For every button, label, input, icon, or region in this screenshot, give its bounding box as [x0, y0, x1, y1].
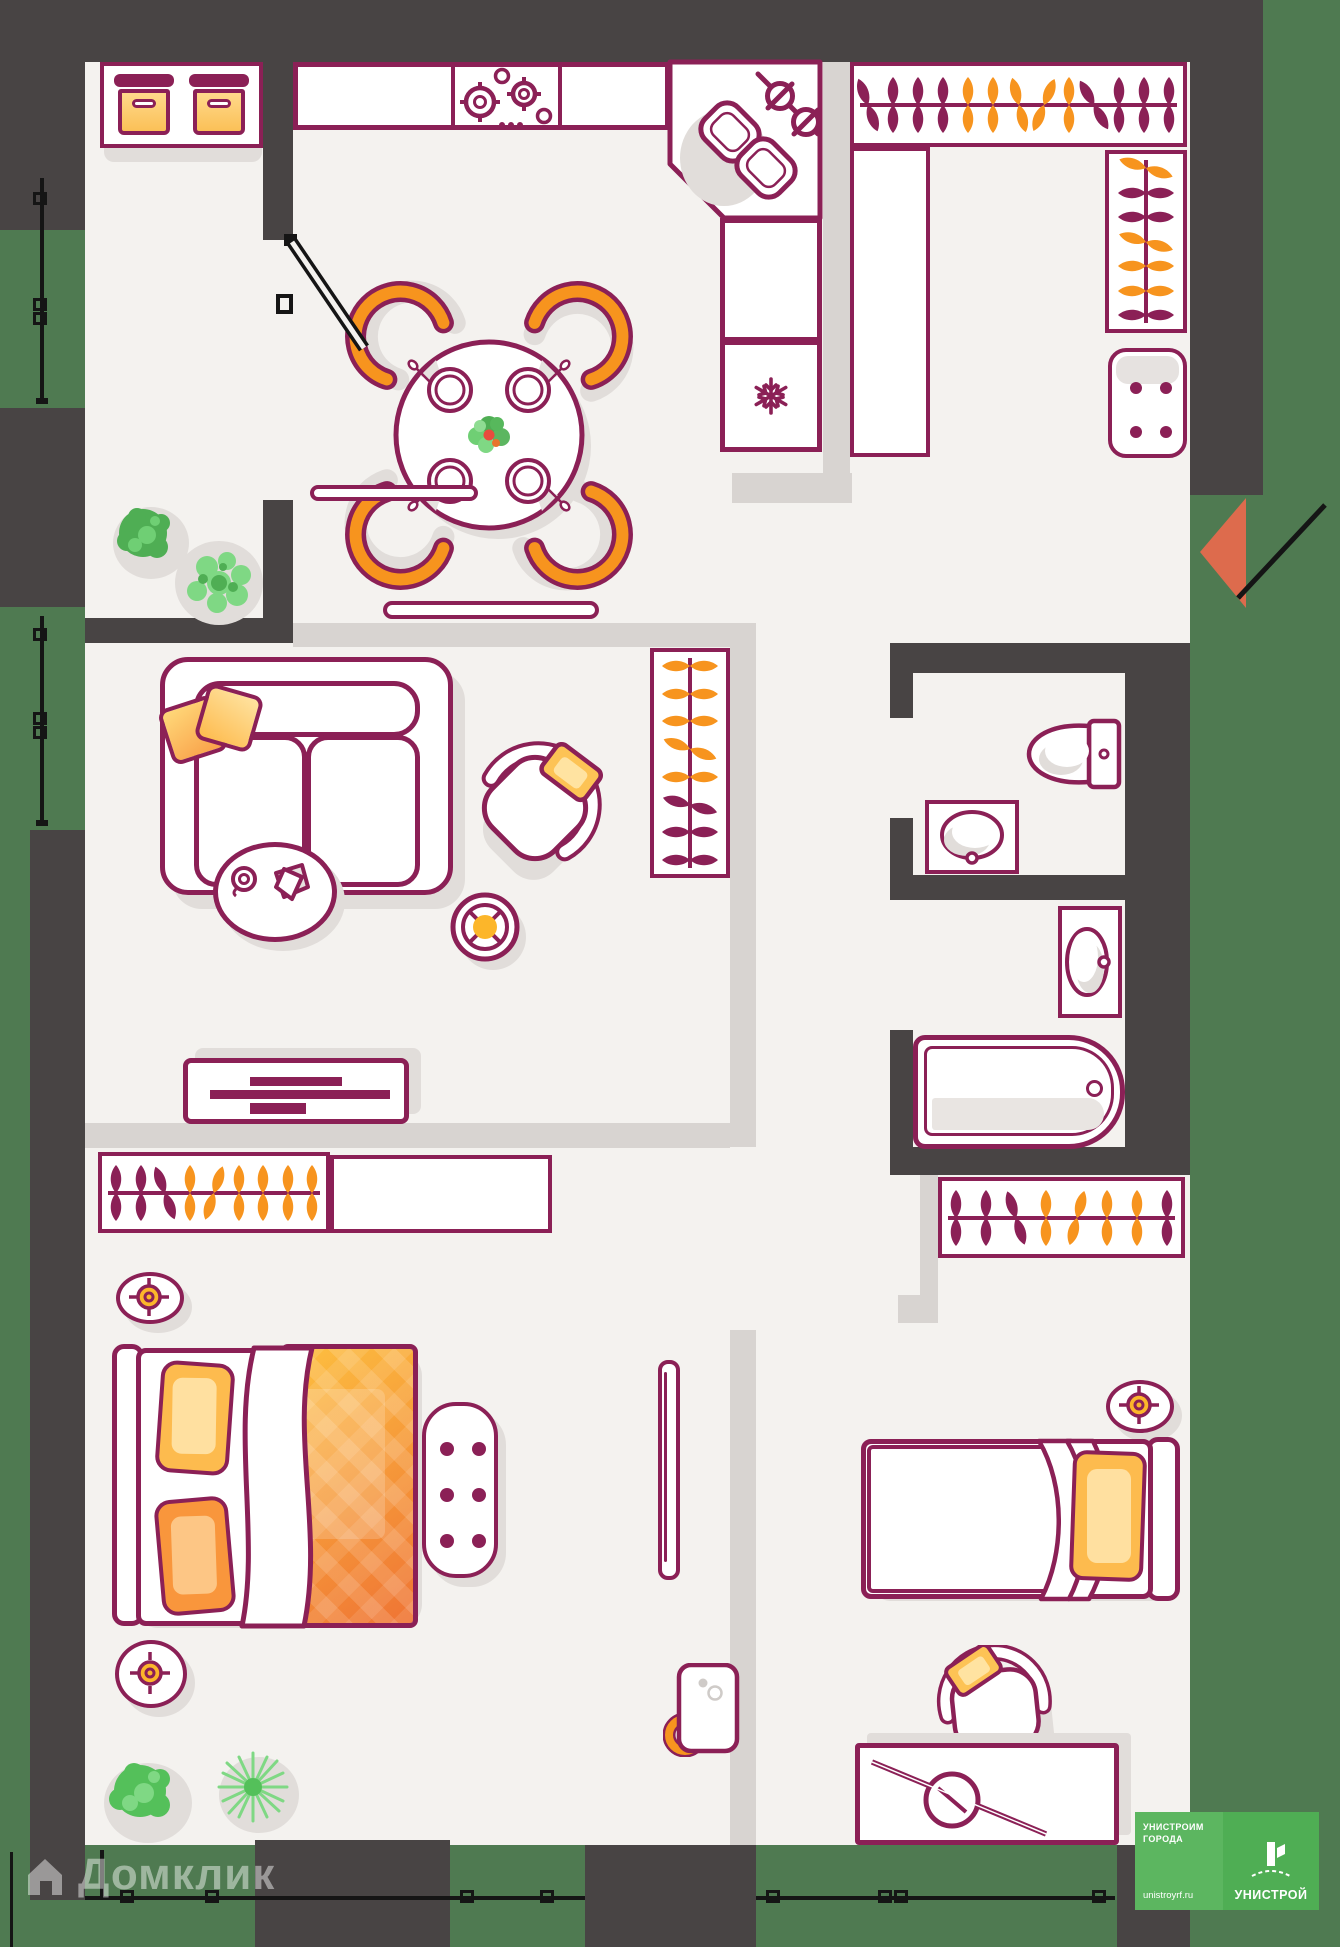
- hanger-icon: [1117, 258, 1175, 274]
- hanger-icon: [133, 1164, 149, 1222]
- tv-stand: [183, 1058, 409, 1124]
- window-frame: [756, 1896, 1115, 1900]
- logo-right-panel: УНИСТРОЙ: [1223, 1812, 1319, 1910]
- hanger-icon: [1117, 307, 1175, 323]
- desk: [855, 1743, 1119, 1845]
- logo-brand: УНИСТРОЙ: [1234, 1888, 1307, 1902]
- hanger-icon: [935, 76, 951, 134]
- hanger-icon: [1117, 209, 1175, 225]
- hanger-icon: [1136, 76, 1152, 134]
- wardrobe-bedroom1-cabinet: [330, 1155, 552, 1233]
- laundry-shelf-shadow: [104, 146, 262, 162]
- hanger-icon: [231, 1164, 247, 1222]
- hanger-icon: [1117, 185, 1175, 201]
- hanger-icon: [255, 1164, 271, 1222]
- laundry-shelf: [100, 62, 263, 148]
- hanger-rail: [854, 66, 1183, 143]
- floor-plan: Домклик УНИСТРОИМ ГОРОДА unistroyrf.ru У…: [0, 0, 1340, 1947]
- tv-bedroom1: [658, 1360, 680, 1580]
- bed-bench: [422, 1402, 498, 1578]
- cup-icon: [233, 868, 255, 896]
- wardrobe-entry-side: [1105, 150, 1187, 333]
- watermark-text: Домклик: [78, 1850, 275, 1900]
- wall-bathroom: [1125, 673, 1190, 1175]
- storage-box-icon: [118, 89, 170, 135]
- wall-bathroom: [913, 1147, 1190, 1175]
- hanger-icon: [661, 852, 719, 868]
- hanger-icon: [182, 1164, 198, 1222]
- kitchen-tall-cabinet: [720, 218, 822, 342]
- hanger-icon: [1099, 1189, 1115, 1247]
- wall: [30, 830, 85, 1900]
- pillow-icon: [153, 1495, 237, 1617]
- hanger-icon: [948, 1189, 964, 1247]
- logo-website: unistroyrf.ru: [1143, 1890, 1215, 1901]
- fridge: [720, 340, 822, 452]
- single-bed: [855, 1433, 1180, 1605]
- wardrobe-living: [650, 648, 730, 878]
- hanger-icon: [304, 1164, 320, 1222]
- entrance-door-icon: [1185, 490, 1340, 620]
- lamp-icon: [120, 1276, 179, 1319]
- logo-tagline: УНИСТРОИМ: [1143, 1821, 1215, 1833]
- storage-box-lid-icon: [189, 74, 249, 87]
- window-frame: [10, 1852, 13, 1947]
- partition-wall: [85, 1123, 730, 1148]
- hanger-icon: [1129, 1189, 1145, 1247]
- snowflake-icon: [725, 345, 817, 447]
- wall: [585, 1845, 756, 1947]
- kitchen-corner-sink: [666, 58, 826, 224]
- hall-cabinet: [850, 147, 930, 457]
- hanger-icon: [661, 713, 719, 729]
- hanger-icon: [960, 76, 976, 134]
- wall-loggia: [263, 62, 293, 240]
- double-bed: [112, 1338, 422, 1634]
- toilet: [1023, 718, 1125, 792]
- plant-icon: [95, 495, 265, 625]
- nightstand-lamp: [1106, 1380, 1174, 1433]
- wardrobe-entry-top: [850, 62, 1187, 147]
- bathroom-sink: [1058, 906, 1122, 1018]
- desk-lamp-icon: [860, 1748, 1114, 1840]
- hanger-rail: [942, 1181, 1181, 1254]
- lamp-icon: [1110, 1384, 1169, 1428]
- stove-icon: [450, 64, 557, 130]
- partition-wall: [730, 1330, 756, 1845]
- tv-dining: [310, 485, 478, 501]
- hanger-rail: [102, 1156, 326, 1229]
- wall: [0, 408, 85, 607]
- hanger-icon: [661, 658, 719, 674]
- partition-wall: [293, 623, 756, 647]
- pillow-icon: [154, 1360, 236, 1477]
- hanger-icon: [1111, 76, 1127, 134]
- hanger-icon: [661, 824, 719, 840]
- wall: [255, 1840, 450, 1947]
- storage-box-lid-icon: [114, 74, 174, 87]
- partition-wall: [730, 647, 756, 1147]
- spiky-plant-icon: [219, 1753, 299, 1833]
- wall-bathroom: [890, 818, 913, 900]
- watermark: Домклик: [20, 1850, 275, 1900]
- developer-logo: УНИСТРОИМ ГОРОДА unistroyrf.ru УНИСТРОЙ: [1135, 1812, 1319, 1910]
- hanger-icon: [985, 76, 1001, 134]
- hanger-icon: [280, 1164, 296, 1222]
- wc-sink: [925, 800, 1019, 874]
- wardrobe-bedroom2: [938, 1177, 1185, 1258]
- hanger-icon: [1038, 1189, 1054, 1247]
- hanger-icon: [661, 769, 719, 785]
- hanger-icon: [978, 1189, 994, 1247]
- unistroy-logo-icon: [1249, 1840, 1293, 1882]
- drain-icon: [1086, 1080, 1103, 1097]
- hanger-icon: [1117, 283, 1175, 299]
- hanger-rail: [654, 652, 726, 874]
- nightstand-lamp: [116, 1272, 184, 1324]
- wall: [1190, 0, 1263, 495]
- shoe-bench: [1108, 348, 1187, 458]
- partition-wall: [823, 62, 850, 503]
- wall-bathroom: [890, 1030, 913, 1175]
- coffee-table: [213, 842, 337, 942]
- armchair: [455, 732, 615, 892]
- hanger-icon: [661, 686, 719, 702]
- hanger-icon: [108, 1164, 124, 1222]
- wall-bathroom: [890, 673, 913, 718]
- lamp-icon: [119, 1644, 182, 1703]
- hanger-rail: [1109, 154, 1183, 329]
- hanger-icon: [1159, 1189, 1175, 1247]
- vacuum-cleaner-icon: [663, 1663, 743, 1757]
- house-icon: [20, 1851, 68, 1899]
- hanger-icon: [885, 76, 901, 134]
- floor-lamp-icon: [443, 885, 535, 981]
- outdoor-right: [1190, 495, 1340, 1947]
- sheet-fold-icon: [224, 1340, 352, 1632]
- door-swing-icon: [268, 232, 383, 367]
- wall-bathroom: [890, 643, 1190, 673]
- hanger-icon: [910, 76, 926, 134]
- partition-wall: [898, 1295, 938, 1323]
- bathtub: [913, 1035, 1125, 1149]
- magazine-icon: [276, 865, 308, 899]
- storage-box-icon: [193, 89, 245, 135]
- nightstand-lamp: [115, 1640, 187, 1708]
- pillow-icon: [1069, 1450, 1147, 1583]
- wall-top: [0, 0, 1263, 62]
- logo-left-panel: УНИСТРОИМ ГОРОДА unistroyrf.ru: [1135, 1812, 1223, 1910]
- tv-living: [383, 601, 599, 619]
- window-frame: [40, 178, 44, 404]
- partition-wall: [732, 473, 852, 503]
- hanger-icon: [1161, 76, 1177, 134]
- wardrobe-bedroom1: [98, 1152, 330, 1233]
- plant-icon: [90, 1745, 320, 1845]
- wall-bathroom: [913, 875, 1190, 900]
